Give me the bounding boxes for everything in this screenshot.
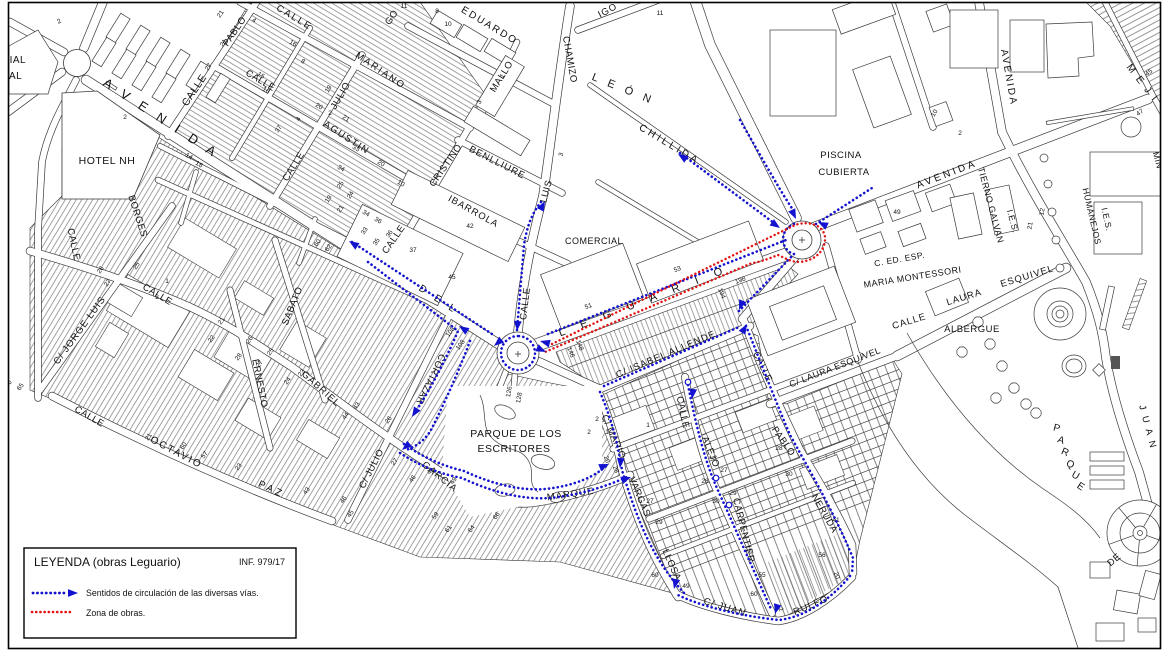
svg-text:2: 2	[155, 294, 159, 301]
svg-text:60: 60	[750, 591, 758, 598]
svg-text:8: 8	[435, 8, 439, 15]
svg-text:2: 2	[123, 114, 127, 121]
svg-text:55: 55	[758, 572, 766, 579]
svg-text:27: 27	[720, 467, 728, 474]
svg-text:PARQUE DE LOS: PARQUE DE LOS	[470, 428, 562, 440]
svg-text:ALBERGUE: ALBERGUE	[944, 324, 1000, 335]
svg-text:49: 49	[682, 583, 690, 590]
svg-text:29: 29	[655, 519, 663, 526]
svg-text:30: 30	[785, 471, 793, 478]
svg-text:1: 1	[618, 442, 622, 449]
svg-text:10: 10	[444, 21, 452, 28]
svg-text:HOTEL NH: HOTEL NH	[79, 155, 136, 167]
svg-text:11: 11	[657, 10, 664, 17]
svg-text:1: 1	[605, 429, 609, 436]
svg-text:30: 30	[712, 498, 720, 505]
svg-text:28: 28	[701, 478, 709, 485]
svg-text:28: 28	[775, 445, 783, 452]
svg-text:2: 2	[595, 416, 599, 423]
svg-text:56: 56	[818, 552, 826, 559]
svg-text:PISCINA: PISCINA	[820, 150, 862, 161]
svg-text:49: 49	[893, 209, 901, 216]
svg-text:37: 37	[409, 247, 417, 254]
svg-text:60: 60	[651, 572, 659, 579]
svg-text:2: 2	[328, 110, 332, 117]
svg-text:29: 29	[729, 490, 737, 497]
svg-text:Zona de obras.: Zona de obras.	[86, 608, 145, 618]
svg-text:1: 1	[646, 422, 650, 429]
svg-text:2: 2	[958, 130, 962, 137]
svg-text:ESCRITORES: ESCRITORES	[477, 443, 550, 455]
svg-text:Sentidos de circulación de las: Sentidos de circulación de las diversas …	[86, 588, 259, 598]
svg-text:27: 27	[646, 498, 654, 505]
svg-text:11: 11	[401, 3, 408, 10]
svg-text:LEYENDA (obras Leguario): LEYENDA (obras Leguario)	[34, 555, 181, 569]
svg-text:2: 2	[587, 429, 591, 436]
svg-text:42: 42	[466, 223, 474, 230]
svg-text:COMERCIAL: COMERCIAL	[565, 236, 623, 246]
svg-text:CUBIERTA: CUBIERTA	[818, 167, 869, 178]
svg-text:INF. 979/17: INF. 979/17	[239, 557, 285, 567]
svg-text:45: 45	[448, 274, 456, 281]
svg-text:1: 1	[165, 278, 169, 285]
